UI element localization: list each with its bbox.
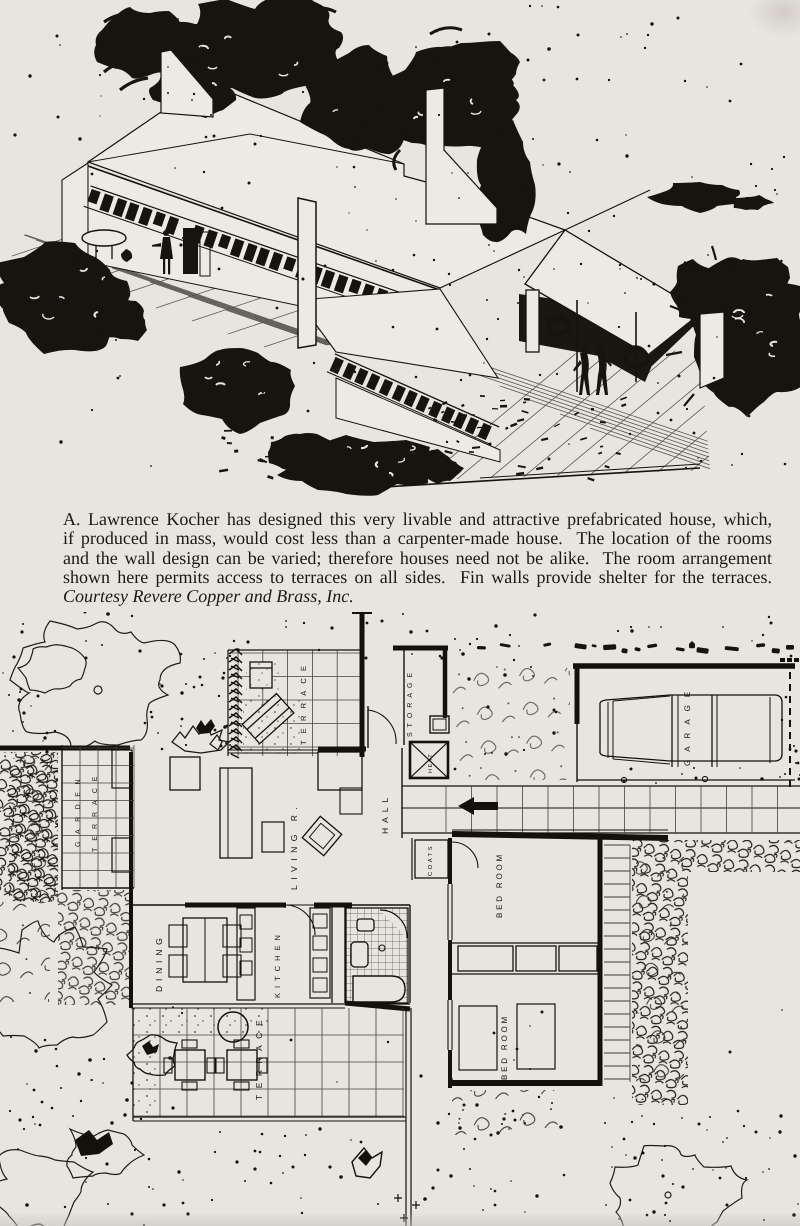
svg-text:COATS: COATS: [427, 844, 434, 876]
svg-text:DINING: DINING: [154, 933, 164, 992]
svg-text:KITCHEN: KITCHEN: [273, 930, 282, 998]
svg-text:TERRACE: TERRACE: [299, 659, 308, 745]
svg-text:TERRACE: TERRACE: [254, 1014, 264, 1100]
svg-text:STORAGE: STORAGE: [407, 668, 414, 737]
svg-text:BED ROOM: BED ROOM: [500, 1014, 509, 1080]
svg-text:GARAGE: GARAGE: [683, 684, 692, 766]
svg-text:LIVING R.: LIVING R.: [289, 802, 299, 890]
svg-text:BED ROOM: BED ROOM: [495, 852, 504, 918]
svg-text:GARDEN: GARDEN: [75, 772, 82, 847]
svg-text:HALL: HALL: [380, 793, 390, 834]
svg-text:TERRACE: TERRACE: [92, 770, 99, 852]
svg-text:HEAT: HEAT: [428, 753, 434, 773]
